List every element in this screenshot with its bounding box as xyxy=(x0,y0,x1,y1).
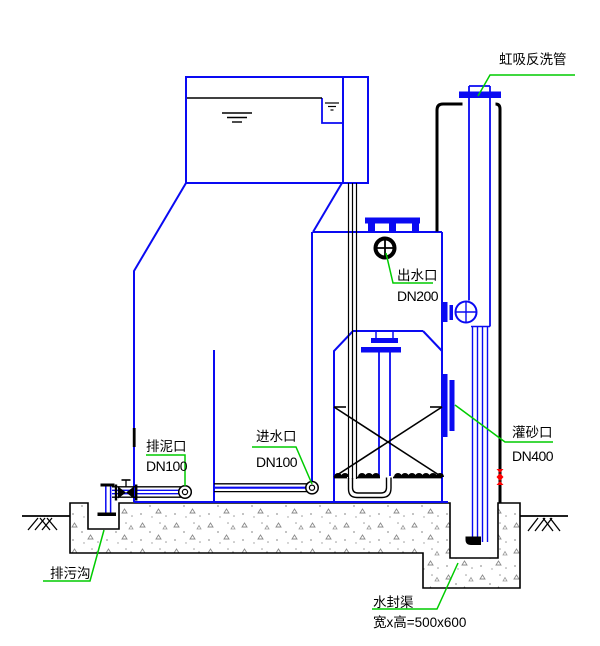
water-level xyxy=(187,98,339,122)
sand-port-flange xyxy=(443,374,455,437)
outlet-valve-icon xyxy=(374,237,396,259)
sludge-pipe-end-flange xyxy=(98,513,117,517)
label-sludge-size: DN100 xyxy=(146,458,188,474)
tank-left-wall xyxy=(134,183,186,502)
label-sewage-ditch: 排污沟 xyxy=(50,566,91,581)
upper-water-tank xyxy=(186,77,368,183)
siphon-connection xyxy=(443,302,477,323)
siphon-valve-icon xyxy=(456,302,477,323)
filter-right-chamfer xyxy=(423,331,442,351)
label-sand-size: DN400 xyxy=(512,448,554,464)
label-inlet-size: DN100 xyxy=(256,454,298,470)
label-sand-port: 灌砂口 xyxy=(512,425,553,440)
label-siphon-backwash-pipe: 虹吸反洗管 xyxy=(499,52,567,67)
label-sludge-port: 排泥口 xyxy=(146,439,187,454)
underdrain-nozzles xyxy=(334,473,444,477)
label-inlet-port: 进水口 xyxy=(256,429,297,444)
upper-tank-outline xyxy=(186,77,368,183)
ground-hatch-right xyxy=(528,518,560,531)
ground-hatch-left xyxy=(28,518,57,530)
distribution-pipe xyxy=(361,331,401,476)
siphon-outlet-foot xyxy=(466,537,482,546)
tank-right-slant xyxy=(313,183,342,232)
wall-sleeve-tick xyxy=(133,428,136,447)
water-level-icon xyxy=(222,113,252,122)
chamber-top-flange xyxy=(365,218,420,233)
inlet-pipe xyxy=(214,482,318,494)
u-bend-pipe xyxy=(349,478,392,498)
label-water-seal-channel: 水封渠 xyxy=(373,595,414,610)
air-release-valve-icon xyxy=(497,469,504,485)
filter-tank-drawing: 虹吸反洗管 出水口 DN200 排泥口 DN100 进水口 DN100 灌砂口 … xyxy=(0,0,600,646)
label-outlet-port: 出水口 xyxy=(397,268,438,283)
sludge-elbow xyxy=(98,484,117,517)
drawing-canvas: 虹吸反洗管 出水口 DN200 排泥口 DN100 进水口 DN100 灌砂口 … xyxy=(0,0,600,646)
sludge-pipe-inlet xyxy=(179,486,192,499)
water-level-icon-small xyxy=(325,103,339,110)
label-water-seal-dimension: 宽x高=500x600 xyxy=(373,614,466,630)
filter-media-cross xyxy=(334,407,442,477)
label-outlet-size: DN200 xyxy=(397,288,439,304)
